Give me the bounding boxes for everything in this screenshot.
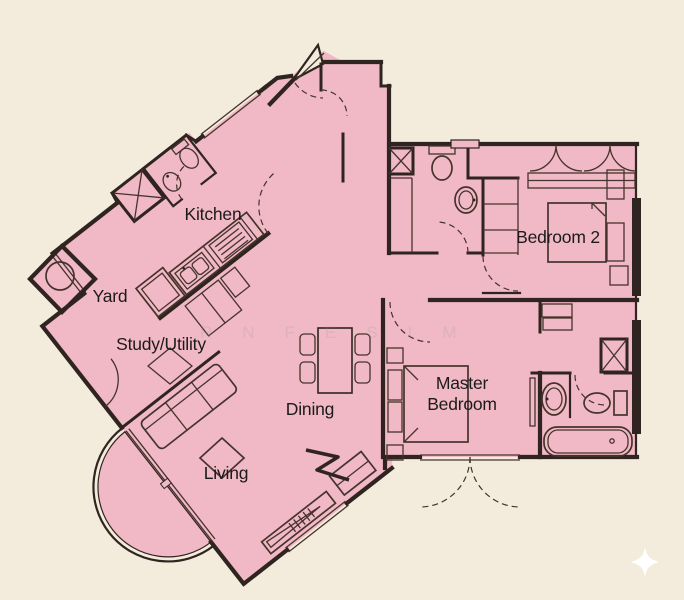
label-living: Living: [204, 463, 249, 483]
label-kitchen: Kitchen: [185, 204, 242, 224]
watermark: RNFESIM: [200, 323, 487, 342]
label-yard: Yard: [93, 286, 128, 306]
floor-plan: RNFESIM Kitchen Yard Study/Utility Dinin…: [0, 0, 684, 600]
label-dining: Dining: [286, 399, 334, 419]
sparkle-icon: [631, 547, 659, 577]
window: [451, 140, 479, 148]
label-study: Study/Utility: [116, 334, 206, 354]
label-bedroom2: Bedroom 2: [516, 227, 600, 247]
label-master-2: Bedroom: [427, 394, 497, 414]
label-master-1: Master: [436, 373, 489, 393]
